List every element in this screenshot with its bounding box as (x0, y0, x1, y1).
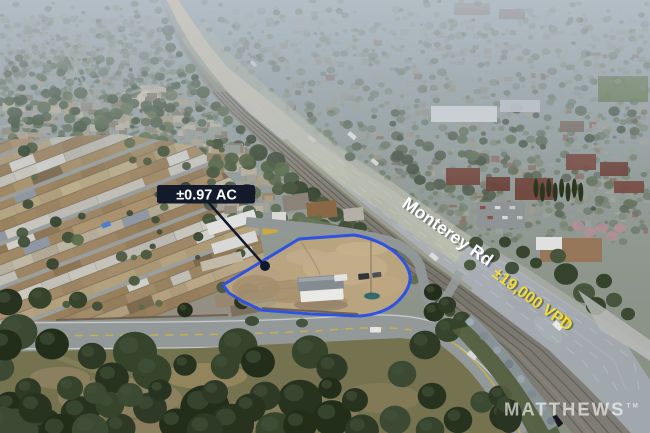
svg-text:MATTHEWSTM: MATTHEWSTM (504, 399, 640, 420)
svg-text:±0.97 AC: ±0.97 AC (176, 188, 237, 204)
